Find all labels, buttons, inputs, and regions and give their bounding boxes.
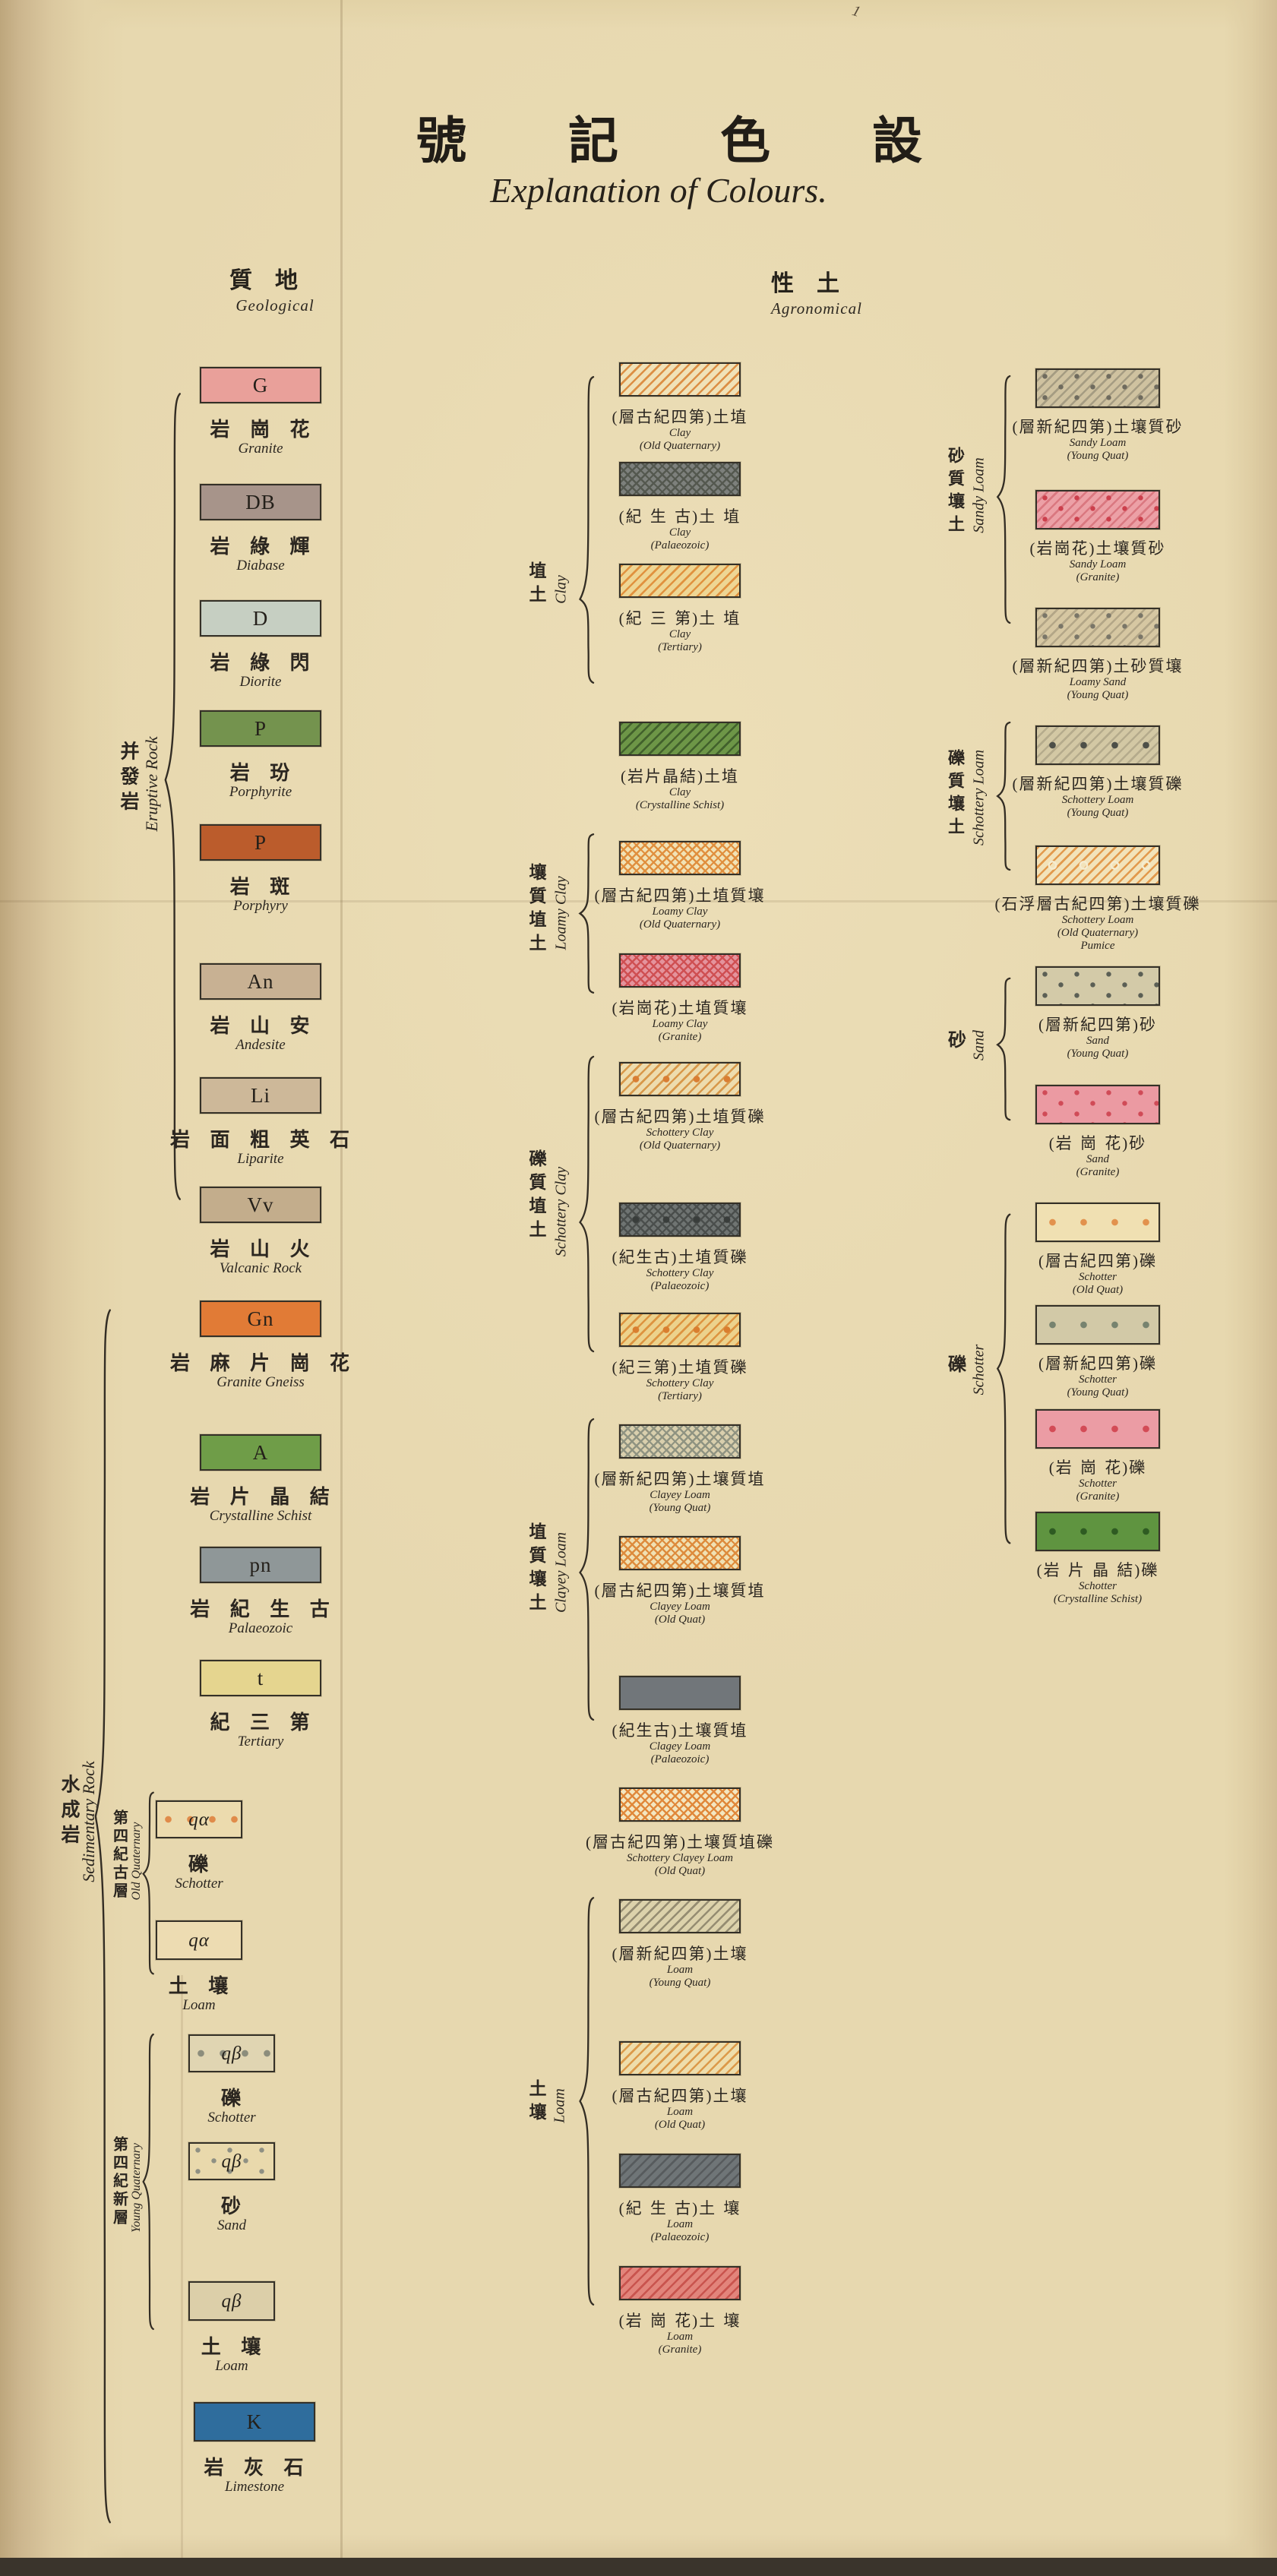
entry-label-cjk: 礫: [62, 1849, 336, 1877]
entry-label-cjk: (層新紀四第)土壤: [528, 1942, 832, 1964]
color-swatch: [619, 1536, 741, 1570]
swatch-code-label: DB: [245, 492, 276, 513]
entry-label-cjk: (層新紀四第)礫: [946, 1351, 1250, 1374]
entry-label-english-line: (Tertiary): [528, 1390, 832, 1403]
legend-entry: (層新紀四第)土壤 Loam(Young Quat): [619, 1899, 741, 1933]
entry-label-english: Loamy Clay(Granite): [528, 1018, 832, 1044]
color-swatch: qα: [156, 1800, 242, 1838]
entry-label-english: Schottery Clay(Tertiary): [528, 1377, 832, 1403]
entry-label-cjk: 岩 綠 閃: [124, 647, 397, 675]
entry-label-english: Porphyrite: [124, 783, 397, 801]
legend-entry: (層古紀四第)土埴 Clay(Old Quaternary): [619, 362, 741, 397]
entry-label-english-line: (Young Quat): [946, 1048, 1250, 1060]
entry-label-english-line: Granite: [124, 440, 397, 458]
entry-label-english-line: Liparite: [124, 1150, 397, 1168]
entry-label-cjk: 岩 紀 生 古: [124, 1594, 397, 1622]
entry-label-english-line: (Old Quat): [946, 1284, 1250, 1297]
color-swatch: [1035, 1512, 1160, 1551]
entry-label-english: Sandy Loam(Granite): [946, 558, 1250, 584]
entry-label-english-line: Schotter: [95, 2109, 368, 2127]
legend-entry: (岩崗花)土埴質壤 Loamy Clay(Granite): [619, 953, 741, 988]
entry-label-english: Tertiary: [124, 1733, 397, 1751]
color-swatch: [619, 1062, 741, 1096]
entry-label-english-line: (Palaeozoic): [528, 539, 832, 552]
entry-label-english-line: (Young Quat): [528, 1502, 832, 1515]
entry-label-english: Clay(Old Quaternary): [528, 427, 832, 453]
entry-label-english-line: Diabase: [124, 557, 397, 575]
color-swatch: [619, 841, 741, 875]
legend-entry: K 岩 灰 石 Limestone: [194, 2402, 315, 2442]
entry-label-english-line: (Granite): [946, 571, 1250, 584]
page-title-cjk: 號記色設: [416, 100, 1024, 173]
entry-label-cjk: (岩崗花)土埴質壤: [528, 996, 832, 1019]
swatch-code-label: P: [254, 833, 267, 853]
entry-label-english-line: Clay: [528, 526, 832, 539]
entry-label-cjk: (層古紀四第)土埴質壤: [528, 883, 832, 906]
color-swatch: G: [200, 367, 321, 403]
legend-entry: (紀生古)土壤質埴 Clagey Loam(Palaeozoic): [619, 1676, 741, 1710]
entry-label-cjk: 砂: [95, 2191, 368, 2219]
legend-entry: qβ 礫 Schotter: [188, 2034, 275, 2072]
entry-label-english-line: Limestone: [118, 2478, 391, 2496]
entry-label-cjk: 岩 斑: [124, 871, 397, 899]
color-swatch: [1035, 1085, 1160, 1124]
photo-edge-bar: [0, 2558, 1277, 2576]
swatch-code-label: G: [253, 375, 269, 396]
color-swatch: [1035, 608, 1160, 647]
entry-label-english: Schottery Clay(Palaeozoic): [528, 1267, 832, 1293]
entry-label-english-line: Loam: [528, 1964, 832, 1977]
group-brace-young-quaternary: [141, 2030, 155, 2334]
entry-label-english: Clayey Loam(Young Quat): [528, 1489, 832, 1515]
legend-entry: (層新紀四第)土壤質礫 Schottery Loam(Young Quat): [1035, 725, 1160, 765]
header-geological-cjk: 質地: [229, 261, 321, 295]
entry-label-cjk: (紀生古)土壤質埴: [528, 1718, 832, 1741]
legend-entry: (紀生古)土埴質礫 Schottery Clay(Palaeozoic): [619, 1203, 741, 1237]
entry-label-english: Loam(Young Quat): [528, 1964, 832, 1990]
swatch-code-label: qα: [188, 1810, 210, 1829]
legend-entry: pn 岩 紀 生 古 Palaeozoic: [200, 1547, 321, 1583]
legend-entry: P 岩 玢 Porphyrite: [200, 710, 321, 747]
entry-label-english-line: (Palaeozoic): [528, 1280, 832, 1293]
color-swatch: [619, 1787, 741, 1822]
entry-label-english-line: Diorite: [124, 673, 397, 691]
legend-entry: (岩 崗 花)礫 Schotter(Granite): [1035, 1409, 1160, 1449]
entry-label-cjk: 岩 面 粗 英 石: [124, 1124, 397, 1152]
color-swatch: [1035, 1305, 1160, 1345]
entry-label-cjk: (紀 生 古)土 埴: [528, 504, 832, 527]
swatch-code-label: pn: [250, 1555, 272, 1576]
entry-label-english-line: Sandy Loam: [946, 437, 1250, 450]
entry-label-english: Diorite: [124, 673, 397, 691]
entry-label-cjk: (紀生古)土埴質礫: [528, 1245, 832, 1268]
page-fold-crease: [340, 0, 343, 2576]
entry-label-cjk: 紀 三 第: [124, 1707, 397, 1735]
legend-entry: D 岩 綠 閃 Diorite: [200, 600, 321, 637]
entry-label-english-line: Crystalline Schist: [124, 1507, 397, 1525]
entry-label-english-line: Schotter: [946, 1478, 1250, 1490]
color-swatch: [619, 1313, 741, 1347]
entry-label-cjk: (層新紀四第)土砂質壤: [946, 654, 1250, 677]
entry-label-english: Schotter(Granite): [946, 1478, 1250, 1503]
entry-label-english-line: (Old Quaternary): [528, 1139, 832, 1152]
entry-label-cjk: (層新紀四第)砂: [946, 1013, 1250, 1035]
entry-label-cjk: (岩 崗 花)礫: [946, 1456, 1250, 1478]
entry-label-english: Liparite: [124, 1150, 397, 1168]
color-swatch: [619, 1676, 741, 1710]
color-swatch: [619, 722, 741, 756]
entry-label-english-line: Porphyrite: [124, 783, 397, 801]
entry-label-english-line: Palaeozoic: [124, 1620, 397, 1638]
entry-label-english-line: (Young Quat): [946, 807, 1250, 820]
group-brace-clayey-loam: [577, 1414, 596, 1724]
group-label-cjk-clay: 埴土: [523, 561, 548, 608]
entry-label-english-line: Loam: [528, 2331, 832, 2344]
entry-label-english-line: Clay: [528, 786, 832, 799]
group-label-cjk-sedimentary: 水成岩: [55, 1775, 82, 1850]
entry-label-english-line: Schottery Clayey Loam: [528, 1852, 832, 1865]
entry-label-english-line: Clayey Loam: [528, 1489, 832, 1502]
color-swatch: [619, 362, 741, 397]
color-swatch: [619, 1424, 741, 1459]
entry-label-english: Clay(Palaeozoic): [528, 526, 832, 552]
entry-label-english: Schottery Loam(Old Quaternary)Pumice: [946, 914, 1250, 953]
color-swatch: Li: [200, 1077, 321, 1114]
entry-label-english-line: Loam: [528, 2106, 832, 2119]
entry-label-english: Clayey Loam(Old Quat): [528, 1601, 832, 1626]
group-label-en-clay: Clay: [553, 575, 571, 604]
entry-label-english-line: (Crystalline Schist): [528, 799, 832, 812]
entry-label-english: Limestone: [118, 2478, 391, 2496]
color-swatch: qα: [156, 1920, 242, 1960]
entry-label-cjk: (層古紀四第)土壤質埴礫: [528, 1830, 832, 1853]
color-swatch: qβ: [188, 2281, 275, 2321]
entry-label-cjk: 土 壤: [62, 1971, 336, 1999]
entry-label-english: Loamy Clay(Old Quaternary): [528, 906, 832, 931]
entry-label-cjk: 礫: [95, 2083, 368, 2111]
color-swatch: pn: [200, 1547, 321, 1583]
corner-mark: 1: [850, 2, 863, 21]
entry-label-english: Sand(Granite): [946, 1153, 1250, 1179]
color-swatch: Gn: [200, 1301, 321, 1337]
color-swatch: D: [200, 600, 321, 637]
swatch-code-label: K: [247, 2412, 263, 2432]
entry-label-english-line: Tertiary: [124, 1733, 397, 1751]
entry-label-english: Clay(Tertiary): [528, 628, 832, 654]
entry-label-english: Clagey Loam(Palaeozoic): [528, 1740, 832, 1766]
entry-label-english: Loamy Sand(Young Quat): [946, 676, 1250, 702]
group-label-cjk-schottery-clay: 礫質埴土: [523, 1149, 548, 1244]
entry-label-cjk: (岩 崗 花)土 壤: [528, 2309, 832, 2331]
header-agronomical-english: Agronomical: [771, 299, 862, 318]
header-geological-english: Geological: [229, 296, 321, 315]
swatch-code-label: An: [248, 972, 274, 992]
entry-label-cjk: (岩崗花)土壤質砂: [946, 536, 1250, 559]
color-swatch: P: [200, 824, 321, 861]
entry-label-english-line: Clay: [528, 628, 832, 641]
legend-entry: qβ 土 壤 Loam: [188, 2281, 275, 2321]
color-swatch: [619, 2041, 741, 2075]
legend-entry: DB 岩 綠 輝 Diabase: [200, 484, 321, 520]
legend-entry: Vv 岩 山 火 Valcanic Rock: [200, 1187, 321, 1223]
header-agronomical-cjk: 性土: [771, 264, 862, 298]
legend-entry: Gn 岩 麻 片 崗 花 Granite Gneiss: [200, 1301, 321, 1337]
entry-label-english: Palaeozoic: [124, 1620, 397, 1638]
entry-label-cjk: (層古紀四第)土埴: [528, 405, 832, 428]
swatch-code-label: Gn: [248, 1309, 274, 1329]
legend-entry: (層古紀四第)礫 Schotter(Old Quat): [1035, 1203, 1160, 1242]
entry-label-english-line: (Old Quaternary): [946, 927, 1250, 940]
entry-label-english: Andesite: [124, 1036, 397, 1054]
legend-entry: (紀 三 第)土 埴 Clay(Tertiary): [619, 564, 741, 598]
entry-label-cjk: (層新紀四第)土壤質埴: [528, 1467, 832, 1490]
legend-entry: (岩片晶結)土埴 Clay(Crystalline Schist): [619, 722, 741, 756]
entry-label-english: Sand(Young Quat): [946, 1035, 1250, 1060]
entry-label-cjk: 岩 玢: [124, 757, 397, 785]
entry-label-english-line: Loamy Clay: [528, 1018, 832, 1031]
entry-label-english: Porphyry: [124, 897, 397, 915]
entry-label-cjk: (岩 片 晶 結)礫: [946, 1558, 1250, 1581]
entry-label-english-line: Clay: [528, 427, 832, 440]
entry-label-english-line: (Old Quat): [528, 1614, 832, 1626]
entry-label-english-line: (Young Quat): [528, 1977, 832, 1990]
legend-entry: (岩 片 晶 結)礫 Schotter(Crystalline Schist): [1035, 1512, 1160, 1551]
legend-sheet: 1 號記色設 Explanation of Colours. 質地 Geolog…: [0, 0, 1277, 2576]
color-swatch: DB: [200, 484, 321, 520]
entry-label-english-line: Sand: [946, 1035, 1250, 1048]
entry-label-english-line: (Granite): [946, 1166, 1250, 1179]
entry-label-english-line: Loam: [528, 2218, 832, 2231]
entry-label-english-line: Schottery Clay: [528, 1127, 832, 1139]
entry-label-english-line: Schottery Clay: [528, 1267, 832, 1280]
entry-label-english-line: (Old Quat): [528, 2119, 832, 2132]
entry-label-english-line: Sand: [946, 1153, 1250, 1166]
entry-label-english-line: (Old Quat): [528, 1865, 832, 1878]
entry-label-english: Loam(Old Quat): [528, 2106, 832, 2132]
color-swatch: [619, 2154, 741, 2188]
column-header-geological: 質地 Geological: [229, 261, 321, 315]
group-label-en-schottery-clay: Schottery Clay: [553, 1167, 571, 1256]
entry-label-english-line: (Old Quaternary): [528, 440, 832, 453]
swatch-code-label: Li: [251, 1086, 270, 1106]
legend-entry: Li 岩 面 粗 英 石 Liparite: [200, 1077, 321, 1114]
legend-entry: (岩 崗 花)砂 Sand(Granite): [1035, 1085, 1160, 1124]
entry-label-cjk: (岩 崗 花)砂: [946, 1131, 1250, 1154]
entry-label-english-line: Andesite: [124, 1036, 397, 1054]
entry-label-english: Sand: [95, 2217, 368, 2235]
legend-entry: (紀 生 古)土 埴 Clay(Palaeozoic): [619, 462, 741, 496]
entry-label-cjk: (紀三第)土埴質礫: [528, 1355, 832, 1378]
entry-label-english: Diabase: [124, 557, 397, 575]
color-swatch: qβ: [188, 2034, 275, 2072]
color-swatch: [619, 462, 741, 496]
color-swatch: P: [200, 710, 321, 747]
entry-label-english-line: (Tertiary): [528, 641, 832, 654]
entry-label-english-line: Schottery Loam: [946, 914, 1250, 927]
legend-entry: (層新紀四第)土壤質埴 Clayey Loam(Young Quat): [619, 1424, 741, 1459]
swatch-code-label: t: [258, 1668, 264, 1689]
entry-label-english-line: (Young Quat): [946, 1386, 1250, 1399]
swatch-code-label: A: [253, 1443, 269, 1463]
legend-entry: (岩 崗 花)土 壤 Loam(Granite): [619, 2266, 741, 2300]
entry-label-english-line: Loamy Clay: [528, 906, 832, 918]
entry-label-cjk: 岩 綠 輝: [124, 531, 397, 559]
column-header-agronomical: 性土 Agronomical: [771, 264, 862, 318]
entry-label-english-line: Valcanic Rock: [124, 1260, 397, 1278]
entry-label-cjk: 岩 麻 片 崗 花: [124, 1348, 397, 1376]
entry-label-cjk: 土 壤: [95, 2331, 368, 2359]
entry-label-cjk: 岩 灰 石: [118, 2452, 391, 2480]
entry-label-cjk: 岩 片 晶 結: [124, 1481, 397, 1509]
entry-label-english-line: Loamy Sand: [946, 676, 1250, 689]
entry-label-english: Schotter(Crystalline Schist): [946, 1580, 1250, 1606]
entry-label-english-line: (Young Quat): [946, 689, 1250, 702]
swatch-code-label: Vv: [248, 1195, 274, 1215]
entry-label-cjk: (層古紀四第)土壤: [528, 2084, 832, 2107]
legend-entry: qα 礫 Schotter: [156, 1800, 242, 1838]
entry-label-english-line: Schottery Clay: [528, 1377, 832, 1390]
swatch-code-label: D: [253, 608, 269, 629]
entry-label-english: Schottery Clayey Loam(Old Quat): [528, 1852, 832, 1878]
legend-entry: (層新紀四第)礫 Schotter(Young Quat): [1035, 1305, 1160, 1345]
entry-label-english-line: Loam: [62, 1996, 336, 2015]
entry-label-english: Loam(Granite): [528, 2331, 832, 2356]
legend-entry: (層新紀四第)土壤質砂 Sandy Loam(Young Quat): [1035, 368, 1160, 408]
entry-label-english: Loam(Palaeozoic): [528, 2218, 832, 2244]
group-brace-sandy-loam: [995, 372, 1012, 627]
legend-entry: (層古紀四第)土壤質埴礫 Schottery Clayey Loam(Old Q…: [619, 1787, 741, 1822]
entry-label-english-line: Granite Gneiss: [124, 1373, 397, 1392]
entry-label-english-line: (Old Quaternary): [528, 918, 832, 931]
color-swatch: [619, 564, 741, 598]
entry-label-cjk: 岩 崗 花: [124, 414, 397, 442]
legend-entry: (層古紀四第)土壤質埴 Clayey Loam(Old Quat): [619, 1536, 741, 1570]
entry-label-cjk: (岩片晶結)土埴: [528, 764, 832, 787]
entry-label-english: Schotter(Old Quat): [946, 1271, 1250, 1297]
legend-entry: (層新紀四第)砂 Sand(Young Quat): [1035, 966, 1160, 1006]
swatch-code-label: qα: [188, 1931, 210, 1950]
entry-label-english-line: Sandy Loam: [946, 558, 1250, 571]
color-swatch: [1035, 845, 1160, 885]
legend-entry: qβ 砂 Sand: [188, 2142, 275, 2180]
group-brace-schottery-clay: [577, 1052, 596, 1356]
entry-label-english-line: (Crystalline Schist): [946, 1593, 1250, 1606]
color-swatch: K: [194, 2402, 315, 2442]
entry-label-english: Crystalline Schist: [124, 1507, 397, 1525]
entry-label-english: Schottery Clay(Old Quaternary): [528, 1127, 832, 1152]
color-swatch: [619, 2266, 741, 2300]
entry-label-english: Granite Gneiss: [124, 1373, 397, 1392]
page-title-english: Explanation of Colours.: [490, 170, 827, 210]
entry-label-english-line: Porphyry: [124, 897, 397, 915]
entry-label-cjk: (石浮層古紀四第)土壤質礫: [946, 892, 1250, 915]
entry-label-english-line: (Palaeozoic): [528, 2231, 832, 2244]
legend-entry: (層古紀四第)土埴質礫 Schottery Clay(Old Quaternar…: [619, 1062, 741, 1096]
group-label-en-sandy-loam: Sandy Loam: [971, 457, 988, 533]
swatch-code-label: P: [254, 719, 267, 739]
legend-entry: (紀三第)土埴質礫 Schottery Clay(Tertiary): [619, 1313, 741, 1347]
color-swatch: [1035, 490, 1160, 529]
entry-label-cjk: 岩 山 安: [124, 1010, 397, 1038]
legend-entry: P 岩 斑 Porphyry: [200, 824, 321, 861]
color-swatch: [1035, 1409, 1160, 1449]
entry-label-english-line: (Palaeozoic): [528, 1753, 832, 1766]
legend-entry: (層古紀四第)土埴質壤 Loamy Clay(Old Quaternary): [619, 841, 741, 875]
color-swatch: t: [200, 1660, 321, 1696]
legend-entry: qα 土 壤 Loam: [156, 1920, 242, 1960]
entry-label-cjk: (層古紀四第)土埴質礫: [528, 1105, 832, 1127]
color-swatch: qβ: [188, 2142, 275, 2180]
entry-label-english-line: Pumice: [946, 940, 1250, 953]
entry-label-english-line: Schotter: [946, 1271, 1250, 1284]
legend-entry: An 岩 山 安 Andesite: [200, 963, 321, 1000]
entry-label-cjk: (紀 生 古)土 壤: [528, 2196, 832, 2219]
entry-label-english: Valcanic Rock: [124, 1260, 397, 1278]
entry-label-english-line: Clagey Loam: [528, 1740, 832, 1753]
color-swatch: [619, 953, 741, 988]
legend-entry: (層古紀四第)土壤 Loam(Old Quat): [619, 2041, 741, 2075]
entry-label-cjk: 岩 山 火: [124, 1234, 397, 1262]
entry-label-english-line: (Granite): [528, 1031, 832, 1044]
entry-label-english-line: Schottery Loam: [946, 794, 1250, 807]
legend-entry: (石浮層古紀四第)土壤質礫 Schottery Loam(Old Quatern…: [1035, 845, 1160, 885]
entry-label-cjk: (層新紀四第)土壤質砂: [946, 415, 1250, 438]
entry-label-english-line: (Young Quat): [946, 450, 1250, 463]
entry-label-english-line: Schotter: [946, 1373, 1250, 1386]
entry-label-cjk: (紀 三 第)土 埴: [528, 606, 832, 629]
swatch-code-label: qβ: [222, 2152, 242, 2171]
swatch-code-label: qβ: [222, 2044, 242, 2063]
color-swatch: An: [200, 963, 321, 1000]
entry-label-english: Schotter(Young Quat): [946, 1373, 1250, 1399]
entry-label-english: Loam: [95, 2357, 368, 2375]
entry-label-cjk: (層古紀四第)礫: [946, 1249, 1250, 1272]
entry-label-english: Schottery Loam(Young Quat): [946, 794, 1250, 820]
color-swatch: [1035, 966, 1160, 1006]
entry-label-cjk: (層古紀四第)土壤質埴: [528, 1579, 832, 1601]
entry-label-english-line: Clayey Loam: [528, 1601, 832, 1614]
entry-label-english: Loam: [62, 1996, 336, 2015]
entry-label-english: Clay(Crystalline Schist): [528, 786, 832, 812]
color-swatch: [1035, 725, 1160, 765]
entry-label-english-line: Sand: [95, 2217, 368, 2235]
color-swatch: A: [200, 1434, 321, 1471]
entry-label-english: Schotter: [95, 2109, 368, 2127]
color-swatch: [1035, 368, 1160, 408]
entry-label-english-line: Schotter: [946, 1580, 1250, 1593]
legend-entry: A 岩 片 晶 結 Crystalline Schist: [200, 1434, 321, 1471]
entry-label-english: Granite: [124, 440, 397, 458]
legend-entry: (岩崗花)土壤質砂 Sandy Loam(Granite): [1035, 490, 1160, 529]
entry-label-english: Sandy Loam(Young Quat): [946, 437, 1250, 463]
legend-entry: (紀 生 古)土 壤 Loam(Palaeozoic): [619, 2154, 741, 2188]
legend-entry: t 紀 三 第 Tertiary: [200, 1660, 321, 1696]
color-swatch: Vv: [200, 1187, 321, 1223]
color-swatch: [619, 1899, 741, 1933]
entry-label-english: Schotter: [62, 1875, 336, 1893]
entry-label-english-line: (Granite): [528, 2344, 832, 2356]
entry-label-cjk: (層新紀四第)土壤質礫: [946, 772, 1250, 795]
entry-label-english-line: Schotter: [62, 1875, 336, 1893]
color-swatch: [619, 1203, 741, 1237]
color-swatch: [1035, 1203, 1160, 1242]
swatch-code-label: qβ: [222, 2292, 242, 2311]
legend-entry: (層新紀四第)土砂質壤 Loamy Sand(Young Quat): [1035, 608, 1160, 647]
legend-entry: G 岩 崗 花 Granite: [200, 367, 321, 403]
entry-label-english-line: Loam: [95, 2357, 368, 2375]
entry-label-english-line: (Granite): [946, 1490, 1250, 1503]
